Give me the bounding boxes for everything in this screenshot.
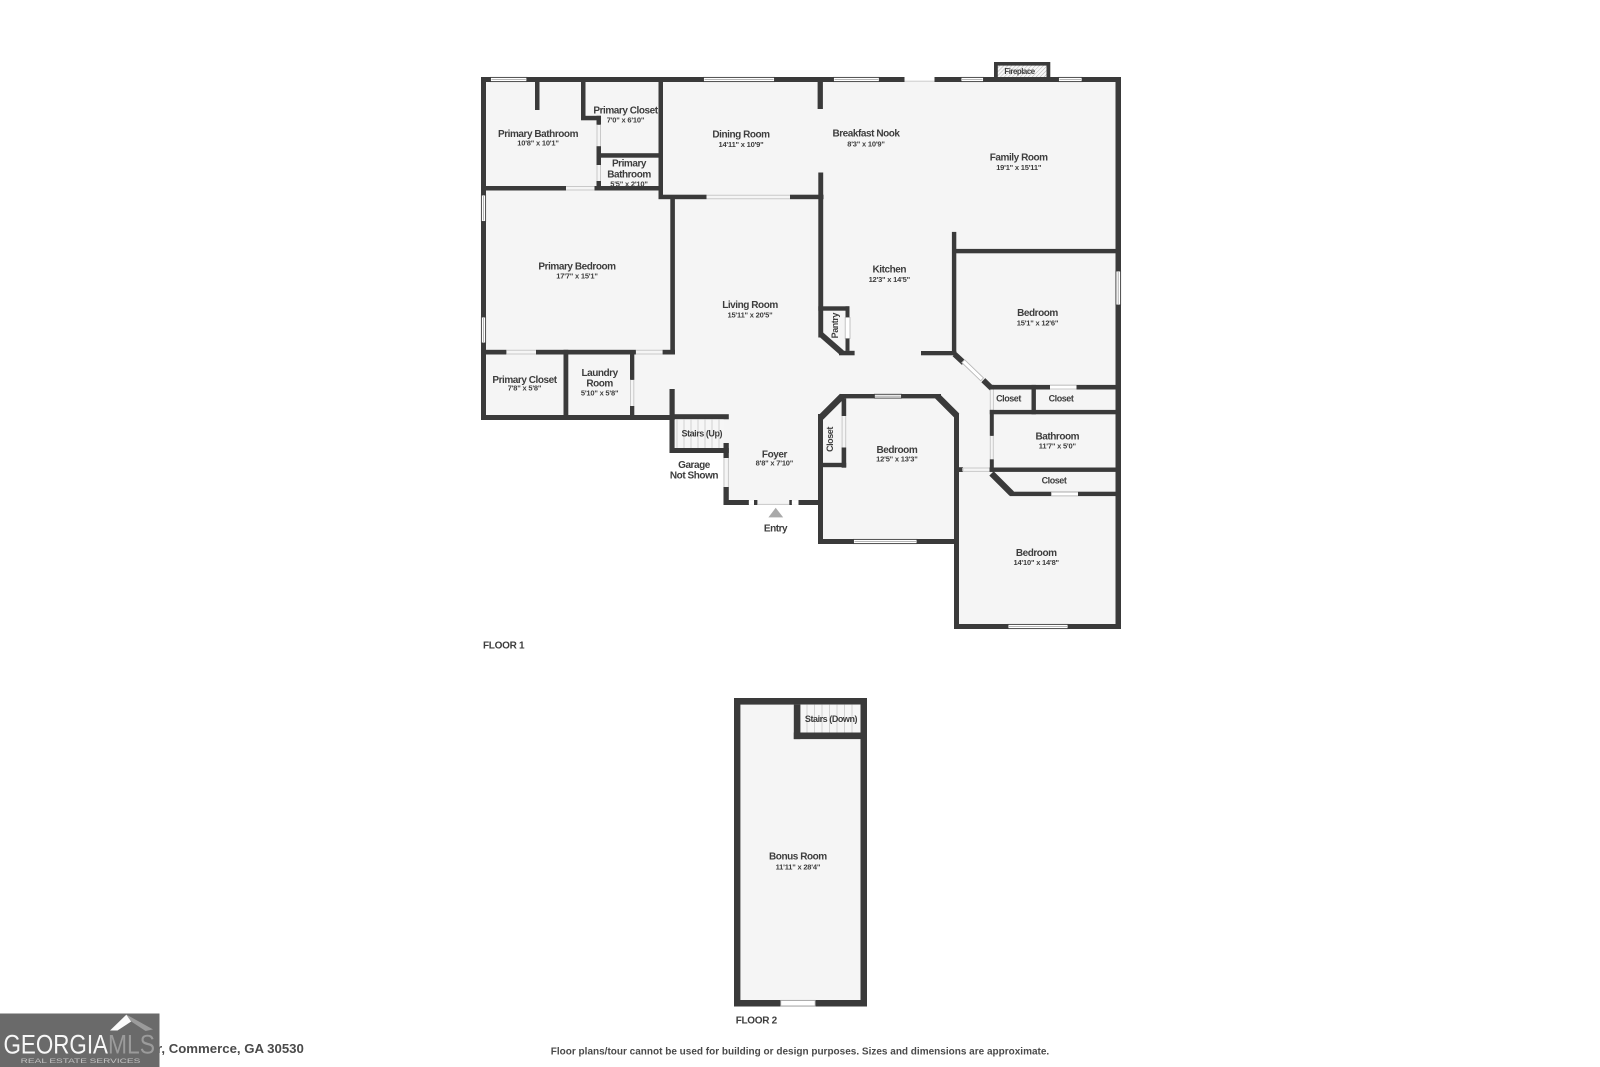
svg-text:Closet: Closet	[1042, 475, 1067, 485]
svg-text:5'5" x 2'10": 5'5" x 2'10"	[610, 179, 648, 188]
svg-text:Fireplace: Fireplace	[1004, 67, 1035, 76]
svg-text:11'7" x 5'0": 11'7" x 5'0"	[1039, 441, 1077, 450]
svg-text:Bedroom: Bedroom	[1017, 308, 1058, 319]
svg-text:Entry: Entry	[764, 523, 788, 534]
svg-text:MLS: MLS	[108, 1030, 155, 1060]
svg-text:11'11" x 28'4": 11'11" x 28'4"	[776, 862, 821, 871]
svg-text:Primary: Primary	[612, 158, 647, 169]
svg-text:Not Shown: Not Shown	[670, 470, 719, 481]
svg-text:8'3" x 10'9": 8'3" x 10'9"	[847, 139, 885, 148]
svg-text:Bonus Room: Bonus Room	[769, 852, 827, 863]
svg-text:Dining Room: Dining Room	[712, 129, 770, 140]
svg-text:5'10" x 5'8": 5'10" x 5'8"	[581, 389, 619, 398]
svg-text:Floor plans/tour cannot be use: Floor plans/tour cannot be used for buil…	[551, 1046, 1050, 1057]
svg-text:Pantry: Pantry	[830, 313, 840, 339]
svg-text:14'10" x 14'8": 14'10" x 14'8"	[1013, 558, 1059, 567]
svg-text:8'8" x 7'10": 8'8" x 7'10"	[756, 459, 794, 468]
svg-text:Closet: Closet	[825, 427, 835, 452]
svg-text:15'1" x 12'6": 15'1" x 12'6"	[1017, 319, 1059, 328]
svg-text:10'8" x 10'1": 10'8" x 10'1"	[517, 139, 559, 148]
svg-text:Closet: Closet	[1049, 394, 1074, 404]
svg-text:15'11" x 20'5": 15'11" x 20'5"	[727, 310, 773, 319]
svg-text:GEORGIA: GEORGIA	[4, 1030, 109, 1060]
svg-text:Family Room: Family Room	[990, 152, 1048, 163]
svg-text:19'1" x 15'11": 19'1" x 15'11"	[996, 163, 1042, 172]
svg-text:Stairs (Down): Stairs (Down)	[805, 714, 858, 724]
svg-text:14'11" x 10'9": 14'11" x 10'9"	[718, 140, 764, 149]
svg-text:FLOOR 2: FLOOR 2	[736, 1016, 778, 1027]
svg-text:Breakfast Nook: Breakfast Nook	[832, 128, 900, 139]
svg-text:17'7" x 15'1": 17'7" x 15'1"	[556, 272, 598, 281]
svg-text:12'5" x 13'3": 12'5" x 13'3"	[876, 454, 918, 463]
svg-text:r, Commerce, GA 30530: r, Commerce, GA 30530	[157, 1041, 304, 1056]
svg-text:REAL ESTATE SERVICES: REAL ESTATE SERVICES	[21, 1058, 141, 1065]
svg-text:Kitchen: Kitchen	[873, 264, 907, 275]
svg-text:Closet: Closet	[996, 394, 1021, 404]
svg-text:12'3" x 14'5": 12'3" x 14'5"	[869, 275, 911, 284]
svg-text:FLOOR 1: FLOOR 1	[483, 640, 525, 651]
svg-text:Stairs (Up): Stairs (Up)	[682, 429, 723, 439]
svg-text:7'8" x 5'8": 7'8" x 5'8"	[508, 383, 542, 392]
svg-text:7'0" x 6'10": 7'0" x 6'10"	[607, 116, 645, 125]
